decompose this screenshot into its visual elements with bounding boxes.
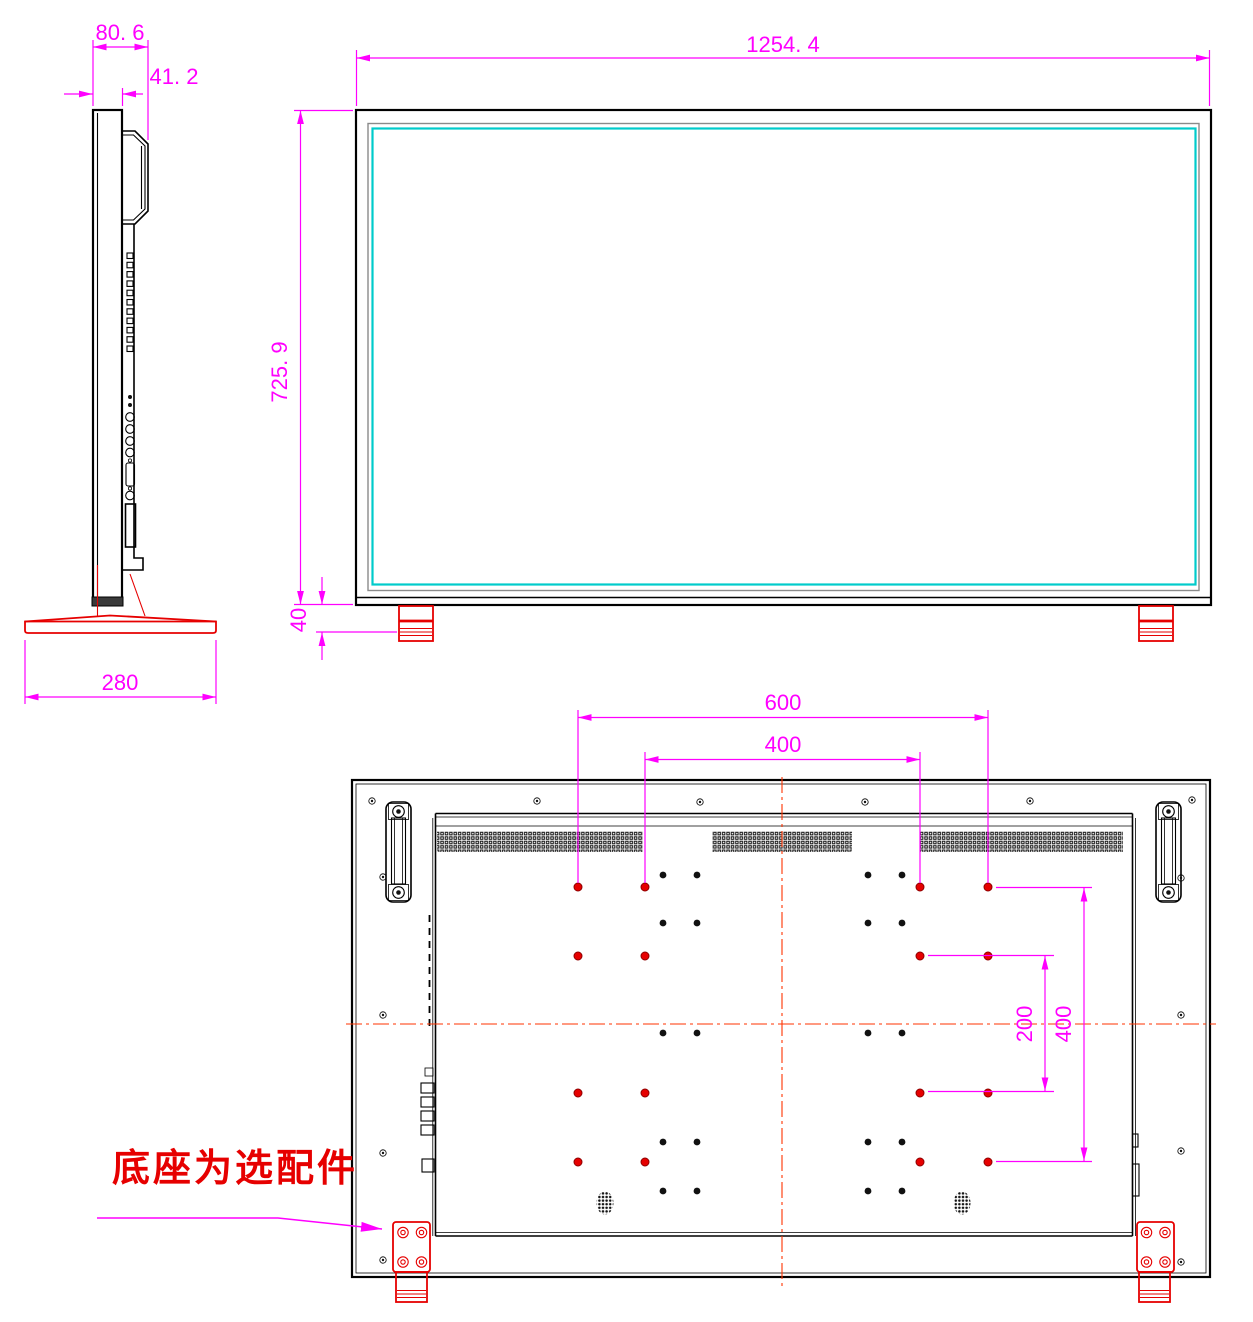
dim-label-1254-4: 1254. 4: [746, 32, 819, 57]
annotation-leader-arrow: [97, 1218, 382, 1229]
rear-side-connectors: [421, 1068, 1139, 1196]
dim-base-depth: 280: [25, 640, 216, 704]
speaker-grille-right: [954, 1192, 971, 1215]
rear-right-handle: [1156, 802, 1181, 902]
rear-right-stand-bracket: [1137, 1222, 1174, 1302]
dim-label-280: 280: [102, 670, 139, 695]
dim-label-80-6: 80. 6: [96, 20, 145, 45]
speaker-grille-left: [597, 1192, 614, 1215]
rear-left-handle: [386, 802, 411, 902]
display-dimension-drawing: 80. 6 41. 2 280: [0, 0, 1253, 1322]
dim-label-600: 600: [765, 690, 802, 715]
dim-front-foot-height: 40: [286, 577, 397, 660]
dim-label-41-2: 41. 2: [150, 64, 199, 89]
side-led-dot: [128, 403, 132, 407]
side-jack: [126, 448, 135, 457]
rear-top-vent-grilles: [437, 831, 1123, 852]
front-left-foot: [399, 606, 433, 641]
dim-front-width: 1254. 4: [357, 32, 1210, 106]
dim-front-height: 725. 9: [267, 111, 353, 605]
front-bezel-inner-line: [368, 124, 1199, 591]
stand-optional-note-text: 底座为选配件: [112, 1148, 358, 1190]
side-jack: [126, 437, 135, 446]
dim-label-725-9: 725. 9: [267, 341, 292, 402]
dim-vesa-600: 600: [578, 690, 988, 883]
side-mount-pod: [122, 131, 148, 224]
side-view: 80. 6 41. 2 280: [25, 20, 216, 704]
front-outer-frame: [356, 110, 1211, 605]
dim-label-40: 40: [286, 608, 311, 632]
rear-left-stand-bracket: [393, 1222, 430, 1302]
io-port-row-icons: [127, 253, 133, 352]
front-screen-edge: [373, 129, 1196, 585]
dim-side-depth-total: 80. 6: [93, 20, 148, 140]
stand-optional-annotation: 底座为选配件: [97, 1148, 382, 1229]
dim-label-400v: 400: [1051, 1006, 1076, 1043]
front-right-foot: [1139, 606, 1173, 641]
technical-drawing-page: 80. 6 41. 2 280: [0, 0, 1253, 1322]
side-jack: [126, 491, 135, 500]
front-view: 1254. 4 725. 9 40: [267, 32, 1211, 660]
side-bottom-cap: [92, 597, 123, 606]
dim-side-depth-panel: 41. 2: [64, 64, 198, 106]
side-led-dot: [128, 395, 132, 399]
dim-label-400h: 400: [765, 732, 802, 757]
side-jack: [126, 413, 135, 422]
rear-view: 600 400 200 400 底座为选配件: [97, 690, 1216, 1302]
side-jack: [126, 425, 135, 434]
dim-label-200: 200: [1012, 1006, 1037, 1043]
rear-outer-frame: [352, 780, 1210, 1277]
